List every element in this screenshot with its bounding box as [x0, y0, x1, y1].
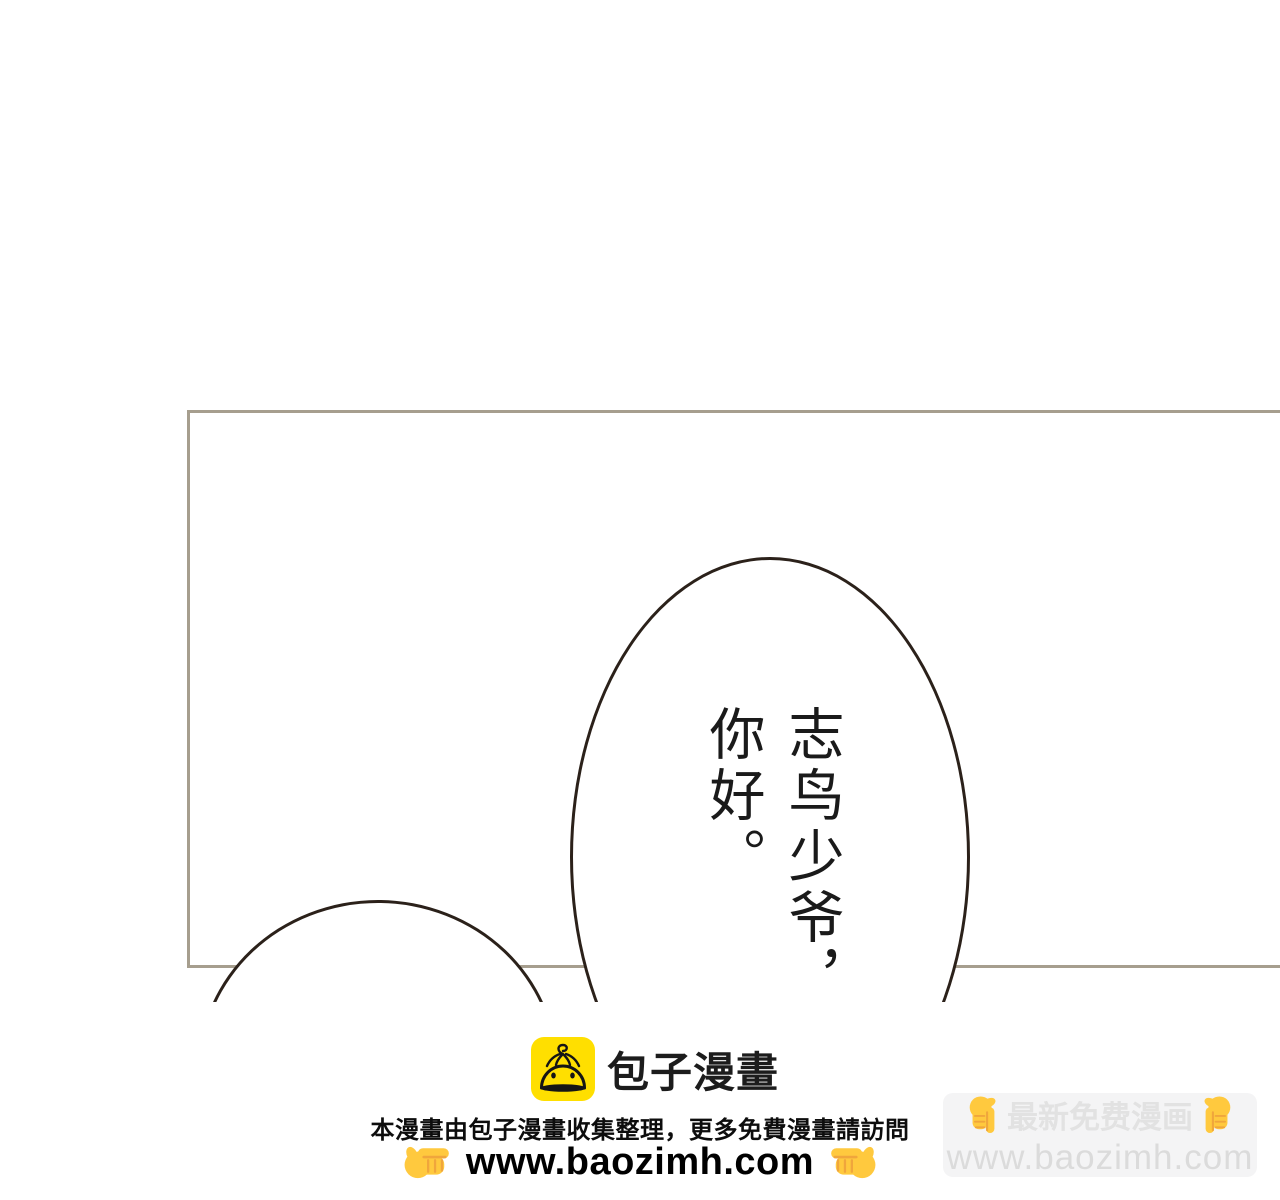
point-down-icon	[964, 1096, 1002, 1134]
comic-image-area: 志鸟少爷， 你好。	[0, 0, 1280, 1002]
speech-line-2: 你好。	[693, 705, 772, 1002]
comic-reader-page: 志鸟少爷， 你好。 包子漫畫 本漫畫由包子漫畫收集整理，更多免費漫畫請訪問 ww…	[0, 0, 1280, 1200]
point-left-icon	[830, 1139, 876, 1185]
watermark-title-row: 最新免费漫画	[964, 1092, 1236, 1137]
baozi-bun-logo-icon	[531, 1037, 595, 1101]
point-right-icon	[404, 1139, 450, 1185]
watermark-url: www.baozimh.com	[947, 1138, 1254, 1178]
site-watermark: 最新免费漫画 www.baozimh.com	[943, 1093, 1257, 1177]
point-down-icon	[1198, 1096, 1236, 1134]
brand-name: 包子漫畫	[607, 1039, 779, 1100]
speech-text: 志鸟少爷， 你好。	[693, 705, 851, 1002]
watermark-title: 最新免费漫画	[1007, 1092, 1193, 1137]
site-url: www.baozimh.com	[466, 1141, 814, 1184]
speech-line-1: 志鸟少爷，	[772, 705, 851, 1002]
baozi-brand: 包子漫畫	[531, 1037, 779, 1101]
